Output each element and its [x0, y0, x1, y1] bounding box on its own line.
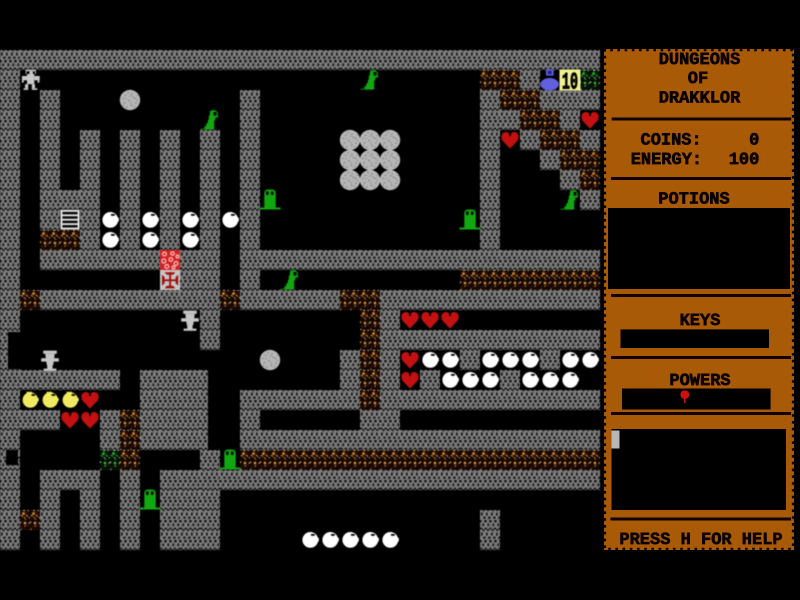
svg-text:POWERS: POWERS — [669, 372, 730, 391]
svg-text:OF: OF — [688, 70, 708, 89]
svg-text:DRAKKLOR: DRAKKLOR — [659, 90, 741, 109]
svg-text:DUNGEONS: DUNGEONS — [659, 51, 741, 70]
svg-text:0: 0 — [749, 131, 759, 150]
svg-text:POTIONS: POTIONS — [658, 191, 729, 210]
svg-text:COINS:: COINS: — [641, 131, 702, 150]
svg-text:ENERGY:: ENERGY: — [631, 151, 702, 170]
svg-text:100: 100 — [729, 151, 760, 170]
svg-text:PRESS H FOR HELP: PRESS H FOR HELP — [619, 531, 782, 550]
svg-text:KEYS: KEYS — [680, 312, 721, 331]
